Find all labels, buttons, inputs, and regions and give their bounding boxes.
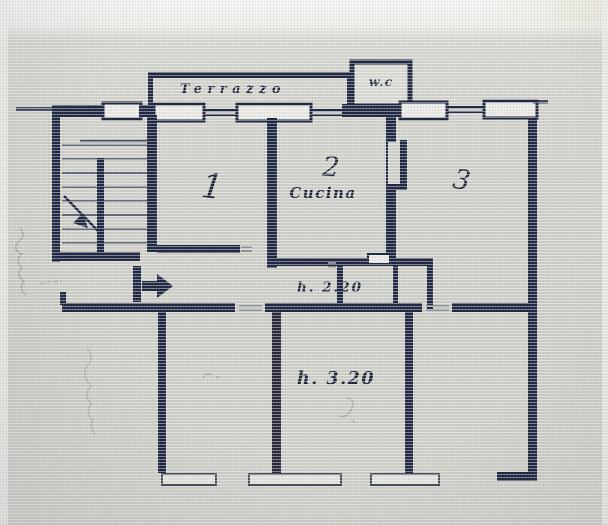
entrance-arrow-icon — [142, 274, 173, 298]
room1-number: 1 — [199, 166, 225, 208]
kitchen-room3-wall — [386, 116, 396, 265]
north-wall — [16, 100, 548, 121]
kitchen-door — [368, 254, 390, 264]
room1-west-wall — [147, 115, 157, 252]
east-exterior-wall — [528, 117, 537, 481]
southeast-corner-wall — [497, 472, 537, 481]
interior-walls-lower — [158, 312, 413, 475]
stairwell-west-wall — [52, 110, 60, 262]
window — [103, 103, 141, 119]
floorplan-drawing: Terrazzo w.c 1 2 Cucina 3 h. 2.20 h. 3.2… — [0, 0, 608, 525]
corridor-height-label: h. 2.20 — [297, 280, 363, 296]
window — [154, 104, 204, 121]
wc-label: w.c — [369, 74, 393, 89]
photo-right-edge — [602, 0, 608, 525]
kitchen-label: Cucina — [289, 184, 356, 202]
south-windows — [162, 472, 537, 485]
room3-number: 3 — [450, 164, 472, 198]
room2-number: 2 — [320, 151, 340, 183]
entrance-jamb — [133, 266, 141, 302]
stair-stringer — [97, 158, 104, 260]
window — [249, 474, 341, 485]
photo-warm-tint — [488, 0, 608, 22]
window — [400, 102, 447, 119]
floorplan-photo: Terrazzo w.c 1 2 Cucina 3 h. 2.20 h. 3.2… — [0, 0, 608, 525]
labels: Terrazzo w.c 1 2 Cucina 3 h. 2.20 h. 3.2… — [180, 74, 473, 389]
room1-south-wall — [157, 245, 240, 253]
window — [484, 101, 537, 118]
corridor-north-wall — [267, 258, 430, 266]
staircase — [62, 141, 147, 243]
window — [371, 474, 439, 485]
stair-landing-wall — [56, 252, 140, 261]
room-height-label: h. 3.20 — [297, 369, 375, 389]
terrace-label: Terrazzo — [180, 82, 286, 97]
corridor-south-wall — [62, 303, 235, 312]
room1-kitchen-wall — [267, 118, 277, 268]
window — [162, 474, 216, 485]
photo-left-edge — [0, 0, 8, 525]
